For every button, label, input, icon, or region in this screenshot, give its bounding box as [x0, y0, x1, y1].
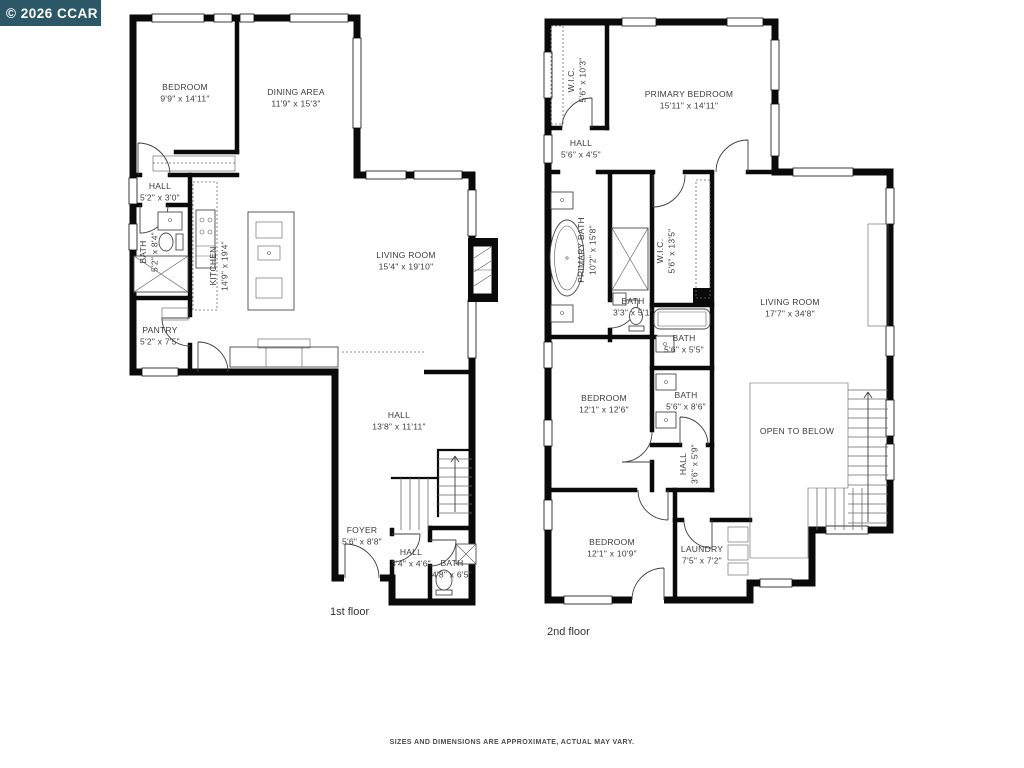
watermark-badge: © 2026 CCAR	[0, 0, 101, 26]
floorplan-page: BEDROOM9'9" x 14'11"DINING AREA11'9" x 1…	[0, 0, 1024, 768]
room-label: BATH5'6" x 8'6"	[666, 390, 706, 412]
floor1-caption: 1st floor	[330, 606, 369, 618]
disclaimer-text: SIZES AND DIMENSIONS ARE APPROXIMATE, AC…	[0, 739, 1024, 746]
room-label: PRIMARY BATH10'2" x 15'8"	[576, 217, 598, 283]
floor1-windows	[129, 14, 476, 376]
floor1-labels: BEDROOM9'9" x 14'11"DINING AREA11'9" x 1…	[138, 82, 472, 580]
floor2-plan: W.I.C.5'6" x 10'3"PRIMARY BEDROOM15'11" …	[544, 18, 894, 604]
room-label: HALL13'8" x 11'11"	[372, 410, 426, 432]
room-label: LIVING ROOM17'7" x 34'8"	[760, 297, 819, 319]
floor2-windows	[544, 18, 894, 604]
floor2-fixtures	[550, 26, 888, 575]
room-label: BEDROOM9'9" x 14'11"	[160, 82, 209, 104]
fireplace	[468, 238, 498, 302]
room-label: DINING AREA11'9" x 15'3"	[267, 87, 325, 109]
floor2-caption: 2nd floor	[547, 626, 590, 638]
room-label: W.I.C.5'6" x 10'3"	[566, 58, 588, 103]
room-label: HALL3'4" x 4'6"	[391, 547, 431, 569]
floor1-stairs	[401, 456, 472, 530]
room-label: HALL3'6" x 5'9"	[678, 444, 700, 484]
floor1-plan: BEDROOM9'9" x 14'11"DINING AREA11'9" x 1…	[129, 14, 498, 602]
room-label: OPEN TO BELOW	[760, 426, 834, 436]
floor2-walls	[548, 22, 890, 600]
room-label: KITCHEN14'9" x 19'4"	[208, 241, 230, 291]
room-label: LIVING ROOM15'4" x 19'10"	[376, 250, 435, 272]
room-label: PANTRY5'2" x 7'5"	[140, 325, 180, 347]
room-label: PRIMARY BEDROOM15'11" x 14'11"	[645, 89, 733, 111]
room-label: FOYER5'6" x 8'8"	[342, 525, 382, 547]
room-label: W.I.C.5'6" x 13'5"	[655, 229, 677, 274]
room-label: HALL5'2" x 3'0"	[140, 181, 180, 203]
room-label: LAUNDRY7'5" x 7'2"	[681, 544, 723, 566]
room-label: BEDROOM12'1" x 12'6"	[579, 393, 629, 415]
floorplan-canvas: BEDROOM9'9" x 14'11"DINING AREA11'9" x 1…	[0, 0, 1024, 768]
room-label: BEDROOM12'1" x 10'9"	[587, 537, 637, 559]
room-label: HALL5'6" x 4'5"	[561, 138, 601, 160]
